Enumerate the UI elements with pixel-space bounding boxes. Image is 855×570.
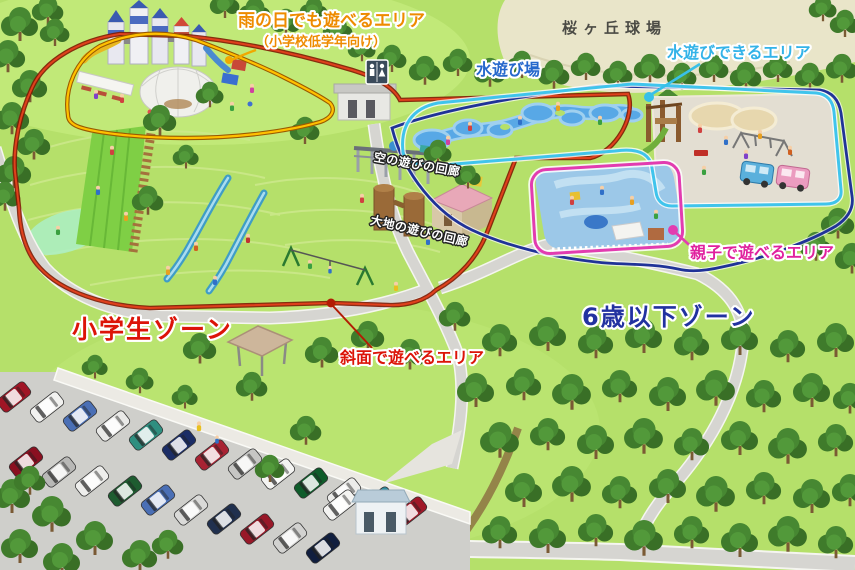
slope-area-dot — [327, 299, 336, 308]
park-map-illustration — [0, 0, 855, 570]
whale-toy — [584, 215, 608, 229]
rainy-area-dot — [225, 56, 233, 64]
parent-child-playground — [536, 163, 683, 250]
service-building — [352, 490, 410, 534]
label-six-under-zone: 6歳以下ゾーン — [582, 305, 756, 329]
label-parent-child-area: 親子で遊べるエリア — [690, 245, 834, 261]
label-rainy-day-area-note: （小学校低学年向け） — [256, 36, 386, 49]
park-map: 雨の日でも遊べるエリア （小学校低学年向け） 桜ヶ丘球場 水遊び場 水遊びできる… — [0, 0, 855, 570]
label-water-playground: 水遊び場 — [476, 62, 540, 78]
label-water-play-area: 水遊びできるエリア — [667, 45, 811, 61]
label-slope-area: 斜面で遊べるエリア — [340, 350, 484, 366]
water-area-dot — [644, 92, 654, 102]
label-ballpark: 桜ヶ丘球場 — [562, 21, 667, 36]
kiosk — [648, 228, 664, 240]
restroom-sign-icon — [366, 60, 388, 84]
restroom-building — [334, 84, 396, 120]
label-elementary-zone: 小学生ゾーン — [72, 317, 233, 342]
label-rainy-day-area: 雨の日でも遊べるエリア — [238, 13, 425, 30]
parent-child-dot — [668, 225, 678, 235]
bench — [694, 150, 708, 156]
